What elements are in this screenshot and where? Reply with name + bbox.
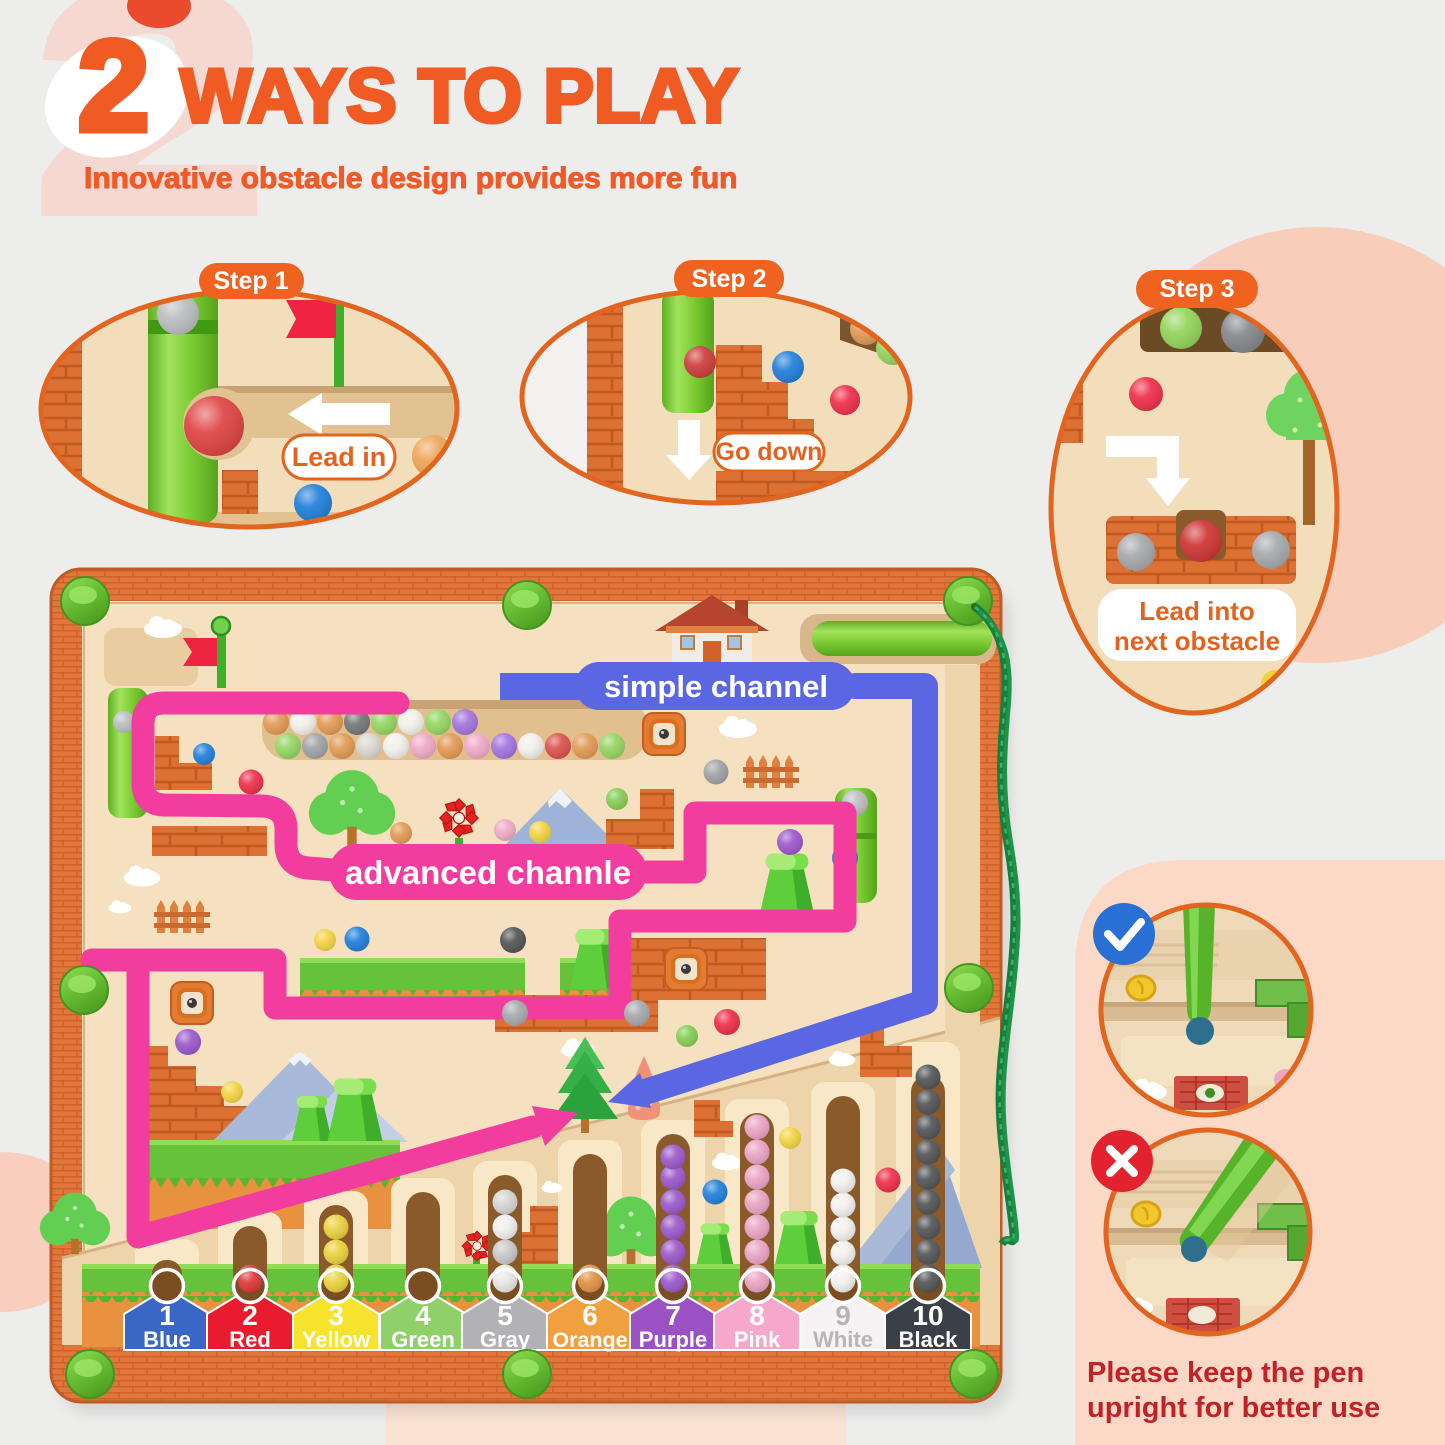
svg-text:WAYS TO PLAY: WAYS TO PLAY (180, 54, 739, 139)
svg-text:Lead into: Lead into (1139, 596, 1255, 626)
svg-text:Step 1: Step 1 (213, 267, 288, 295)
svg-text:Step 2: Step 2 (691, 265, 766, 293)
svg-text:White: White (813, 1327, 873, 1352)
svg-text:Purple: Purple (639, 1327, 707, 1352)
svg-text:advanced channle: advanced channle (345, 854, 631, 891)
svg-text:Please keep the pen: Please keep the pen (1087, 1357, 1364, 1389)
svg-text:upright for better use: upright for better use (1087, 1392, 1380, 1424)
svg-text:Blue: Blue (143, 1327, 191, 1352)
svg-text:Yellow: Yellow (302, 1327, 371, 1352)
svg-text:Red: Red (229, 1327, 271, 1352)
svg-text:next obstacle: next obstacle (1114, 626, 1280, 656)
svg-text:2: 2 (78, 15, 149, 158)
svg-text:Innovative obstacle design pro: Innovative obstacle design provides more… (84, 162, 737, 195)
svg-text:simple channel: simple channel (604, 669, 828, 704)
svg-text:Lead in: Lead in (292, 442, 387, 472)
svg-text:Pink: Pink (734, 1327, 781, 1352)
svg-text:Step 3: Step 3 (1159, 275, 1234, 303)
svg-text:Go down: Go down (716, 438, 823, 466)
svg-text:Gray: Gray (480, 1327, 531, 1352)
svg-text:Green: Green (391, 1327, 455, 1352)
svg-text:Black: Black (899, 1327, 958, 1352)
svg-text:Orange: Orange (552, 1328, 627, 1352)
svg-text:6: 6 (582, 1300, 598, 1331)
